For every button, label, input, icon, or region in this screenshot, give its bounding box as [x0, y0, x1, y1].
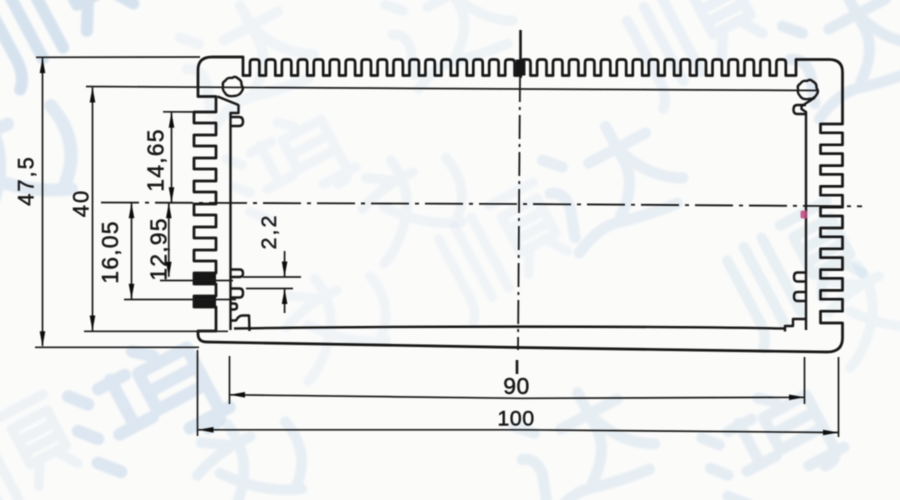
svg-text:47,5: 47,5	[13, 155, 38, 206]
svg-text:16,05: 16,05	[97, 220, 123, 284]
svg-text:2,2: 2,2	[257, 214, 281, 250]
svg-text:14,65: 14,65	[143, 128, 169, 192]
svg-text:90: 90	[503, 373, 530, 399]
svg-text:40: 40	[68, 189, 93, 217]
svg-text:100: 100	[497, 407, 534, 431]
svg-text:12,95: 12,95	[146, 217, 172, 281]
